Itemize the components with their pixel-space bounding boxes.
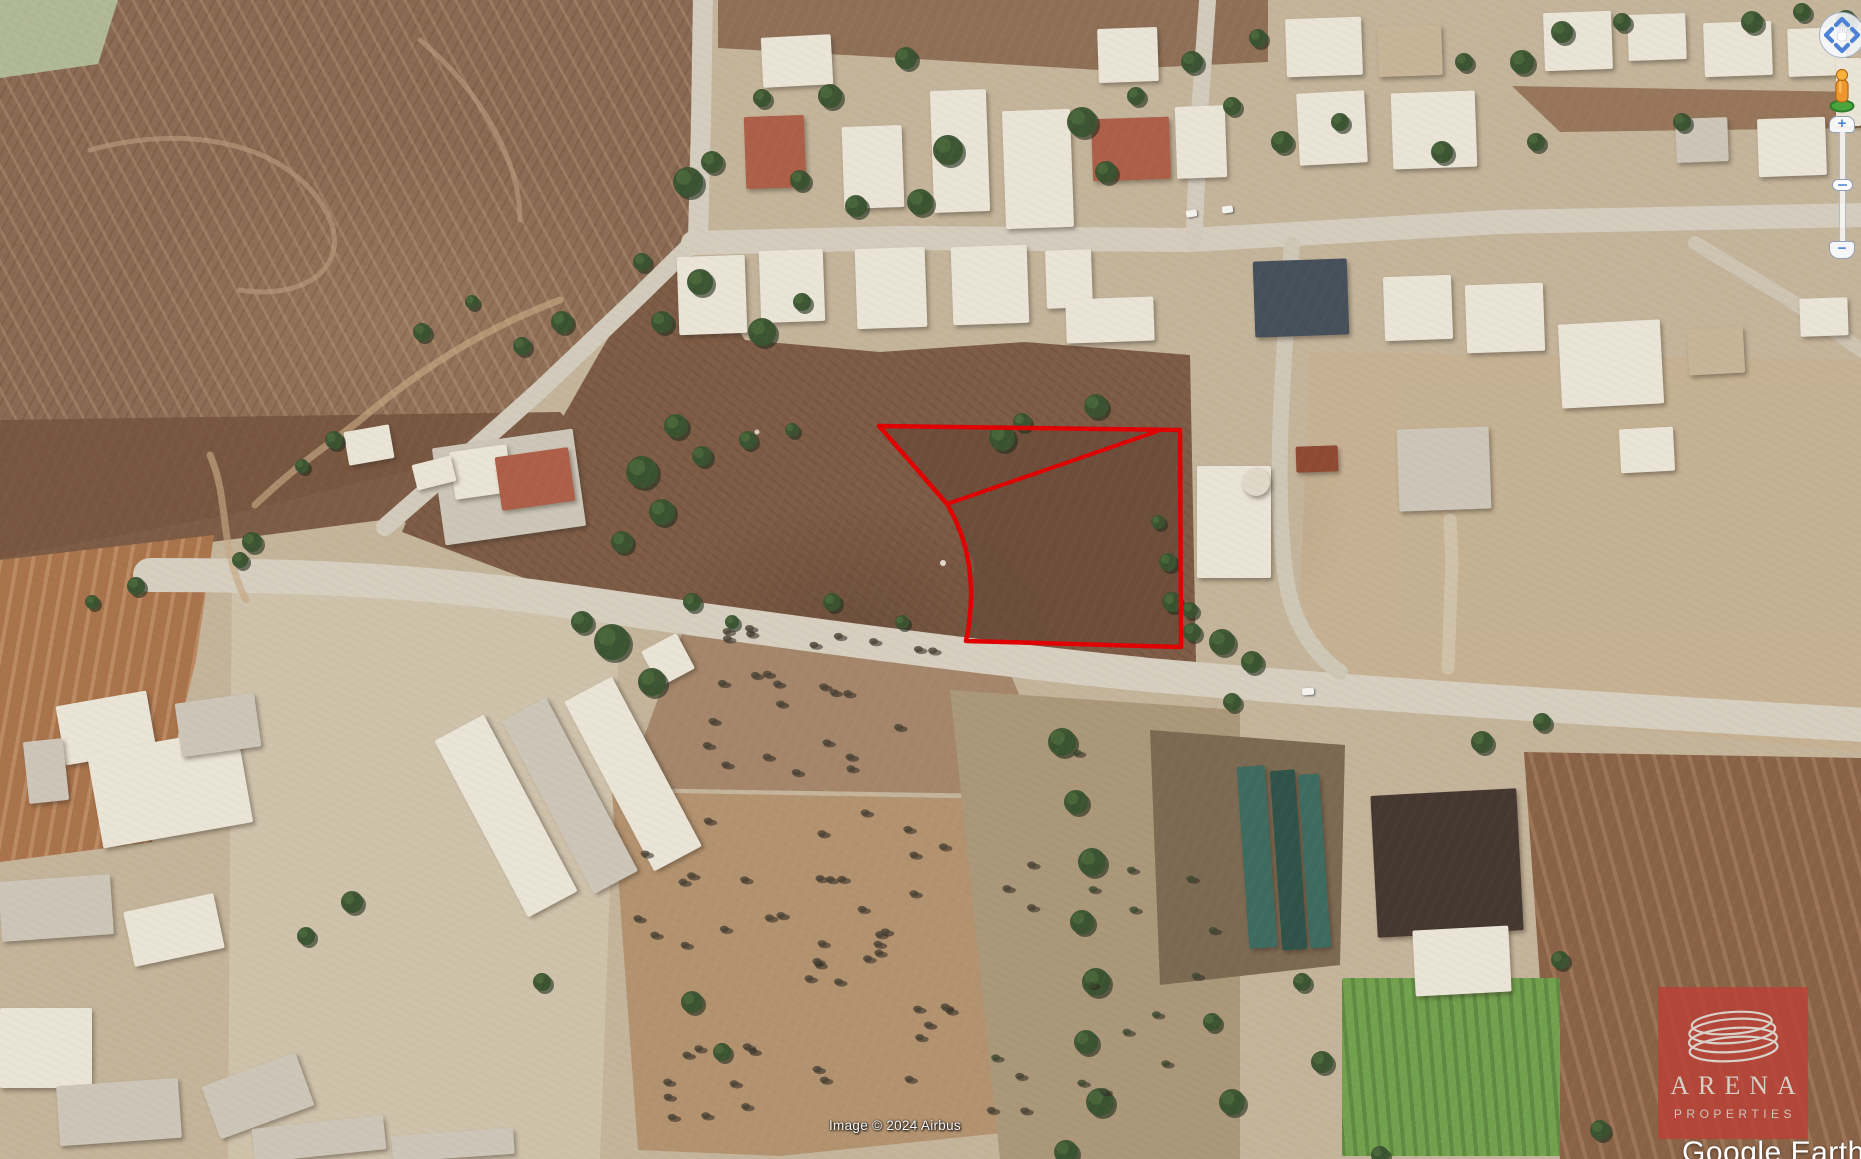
grain-texture [0,0,1861,1159]
pan-control[interactable] [1818,11,1861,59]
google-earth-logo: Google Earth [1682,1136,1861,1159]
zoom-out-button[interactable]: − [1829,241,1855,259]
arena-properties-watermark: ARENA PROPERTIES [1658,987,1808,1139]
zoom-in-button[interactable]: + [1829,116,1855,133]
hand-icon [1838,26,1847,42]
arena-subtitle: PROPERTIES [1658,1107,1808,1121]
zoom-slider-handle[interactable] [1832,179,1853,191]
pegman-streetview-icon[interactable] [1824,66,1860,114]
arena-title: ARENA [1658,1071,1808,1101]
map-viewport[interactable]: + − Image © 2024 Airbus ARENA PROPERTIES… [0,0,1861,1159]
arena-rings-icon [1658,993,1808,1073]
imagery-attribution: Image © 2024 Airbus [829,1118,961,1133]
